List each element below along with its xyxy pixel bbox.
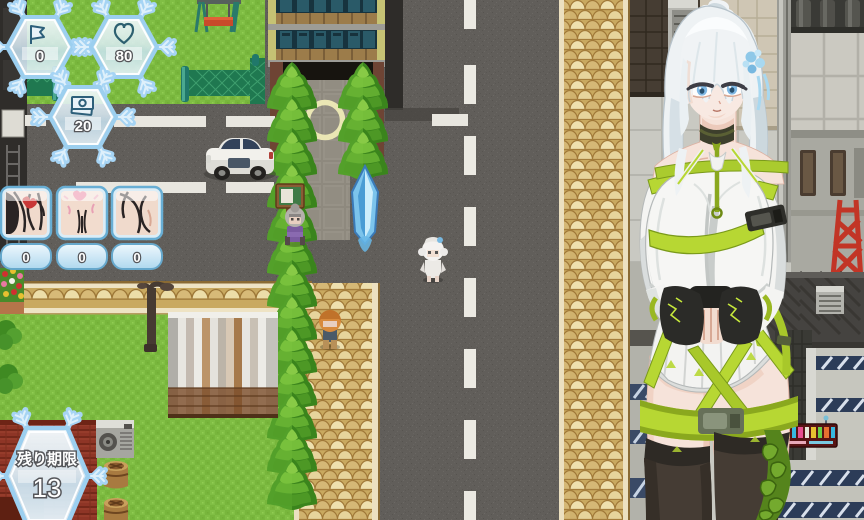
svg-text:0: 0 xyxy=(78,250,85,265)
svg-text:20: 20 xyxy=(75,118,92,135)
svg-text:0: 0 xyxy=(133,250,140,265)
svg-text:0: 0 xyxy=(36,48,44,65)
svg-text:13: 13 xyxy=(33,473,62,503)
svg-text:残り期限: 残り期限 xyxy=(17,450,77,468)
svg-text:80: 80 xyxy=(116,48,133,65)
svg-text:0: 0 xyxy=(22,250,29,265)
